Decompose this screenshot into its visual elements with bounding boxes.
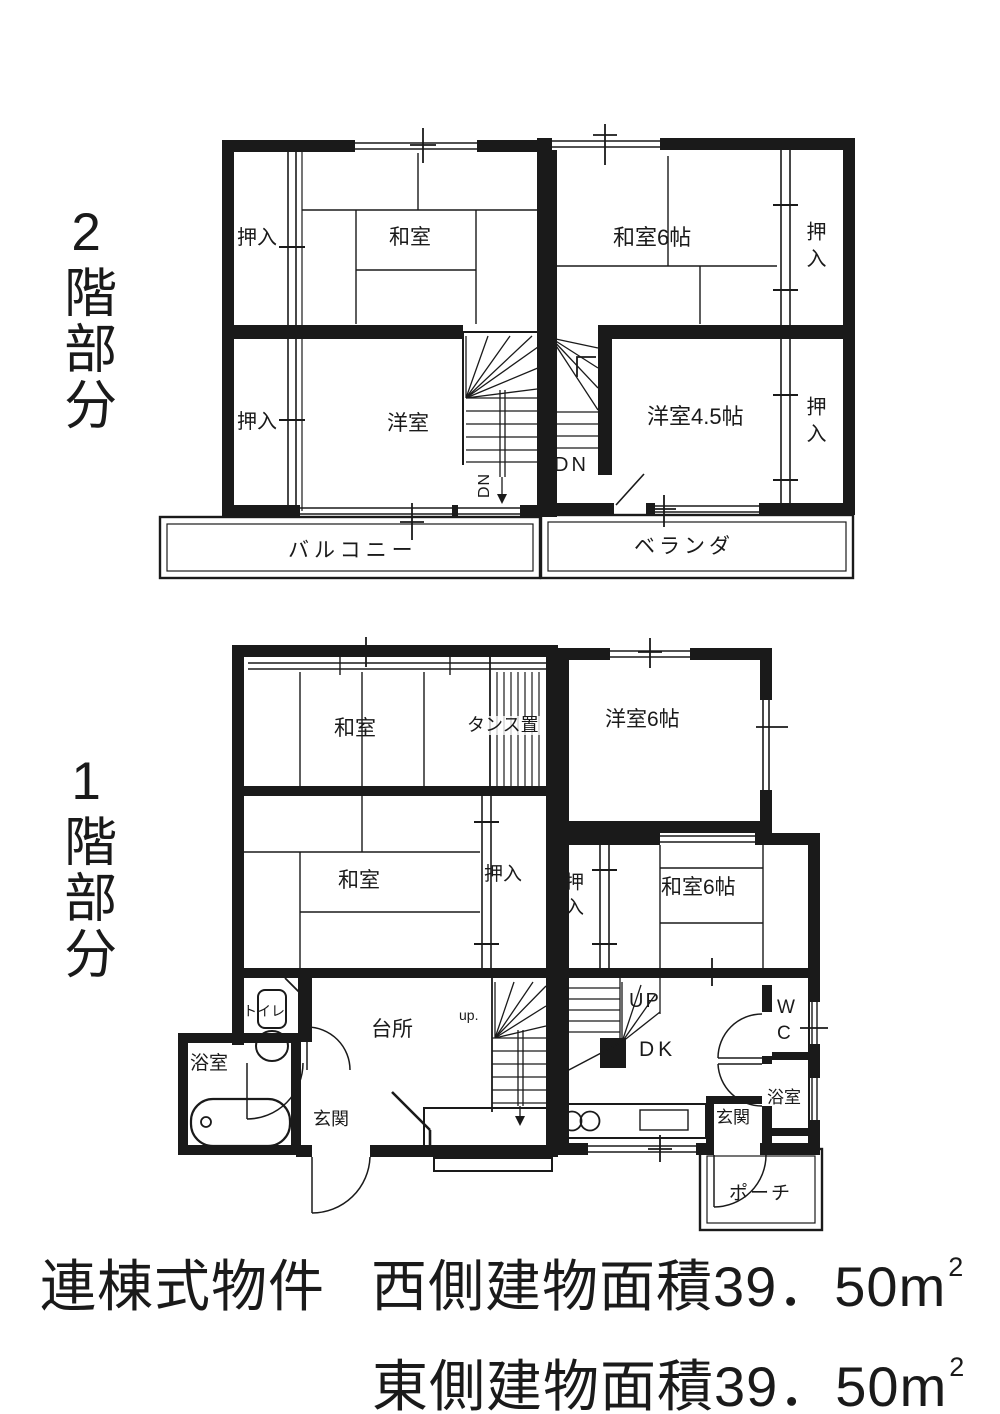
room-label-1f-east-bath: 浴室 (767, 1089, 801, 1107)
f1-east-kitchen-fixtures (560, 1104, 706, 1138)
room-label-2f-west-closet-top: 押入 (237, 228, 277, 249)
balcony-label: バルコニー (288, 540, 418, 562)
f1-west-counters (424, 1108, 552, 1171)
room-label-1f-east-closet: 押入 (562, 872, 582, 922)
room-label-1f-east-genkan: 玄関 (716, 1109, 750, 1127)
floor2-section-title: 2階部分 (58, 203, 114, 433)
stairs-label-2f-west-dn: DN (477, 473, 494, 498)
porch-label: ポーチ (729, 1184, 792, 1204)
floorplan-linework (0, 0, 1000, 1414)
stairs-label-1f-east-up: UP (629, 991, 661, 1012)
room-label-1f-east-washitsu6: 和室6帖 (661, 877, 736, 899)
footer-west-area-sup: 2 (948, 1252, 964, 1282)
footer-line-1: 連棟式物件西側建物面積39．50m2 (40, 1242, 964, 1323)
room-label-1f-west-genkan: 玄関 (313, 1110, 349, 1129)
room-label-2f-west-youshitsu: 洋室 (387, 413, 429, 435)
room-label-1f-west-washitsu-top: 和室 (334, 718, 376, 740)
veranda-label: ベランダ (634, 536, 734, 558)
stairs-label-1f-west-up: up. (459, 1008, 478, 1023)
f1-east-fusuma (592, 845, 617, 968)
room-label-2f-east-washitsu6: 和室6帖 (613, 226, 691, 249)
f1-west-stairs (492, 978, 546, 1126)
room-label-1f-west-bath: 浴室 (190, 1054, 228, 1074)
room-label-1f-east-dk: DK (639, 1039, 676, 1061)
f2-west-walls (228, 146, 551, 511)
room-label-1f-west-washitsu-mid: 和室 (338, 870, 380, 892)
f1-west-window-band (248, 657, 546, 675)
f2-east-stairs (551, 338, 598, 448)
room-label-1f-west-tansu: タンス置 (465, 716, 541, 735)
room-label-1f-west-toilet: トイレ (243, 1004, 285, 1019)
room-label-2f-east-youshitsu45: 洋室4.5帖 (647, 405, 744, 428)
room-label-2f-west-closet-bottom: 押入 (237, 412, 277, 433)
room-label-1f-east-youshitsu6: 洋室6帖 (605, 709, 680, 731)
f1-east-tatami (660, 845, 763, 968)
survey-ticks (354, 124, 828, 1162)
room-label-2f-west-washitsu: 和室 (389, 227, 431, 249)
room-label-1f-east-wc: WC (777, 995, 799, 1046)
room-label-2f-east-closet-bottom: 押入 (803, 396, 824, 450)
footer-property-type: 連棟式物件 (40, 1255, 325, 1318)
floorplan-page: 2階部分 1階部分 押入 和室 押入 洋室 DN バルコニー 和室6帖 押入 洋… (0, 0, 1000, 1414)
footer-east-area-sup: 2 (949, 1352, 965, 1382)
room-label-1f-west-kitchen: 台所 (371, 1019, 413, 1041)
stairs-label-2f-east-dn: DN (554, 455, 589, 476)
footer-east-area: 東側建物面積39．50m (372, 1355, 947, 1414)
room-label-2f-east-closet-top: 押入 (803, 221, 824, 275)
floor1-section-title: 1階部分 (58, 752, 114, 982)
footer-line-2: 東側建物面積39．50m2 (372, 1342, 965, 1414)
room-label-1f-west-closet: 押入 (484, 865, 522, 885)
f1-east-youshitsu6 (563, 648, 772, 845)
f2-east-walls (543, 144, 849, 509)
footer-west-area: 西側建物面積39．50m (371, 1255, 946, 1318)
